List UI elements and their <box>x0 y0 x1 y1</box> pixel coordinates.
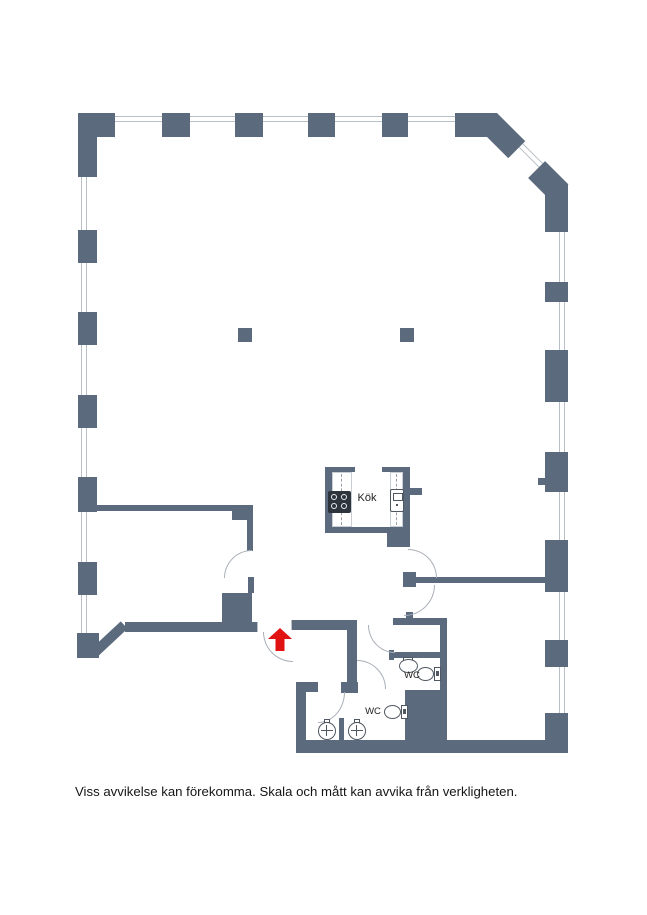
window <box>78 263 97 312</box>
window <box>78 345 97 395</box>
wall-segment <box>247 519 253 551</box>
wall-segment <box>232 511 253 520</box>
window <box>408 113 455 137</box>
window <box>78 428 97 477</box>
window <box>545 232 568 282</box>
window <box>190 113 235 137</box>
wall-pier <box>545 282 568 302</box>
wall-segment <box>538 478 548 485</box>
wall-segment <box>97 505 253 511</box>
kitchen-sink-icon <box>390 489 404 512</box>
disclaimer-text: Viss avvikelse kan förekomma. Skala och … <box>75 784 517 799</box>
wall-pier <box>78 113 115 137</box>
toilet-flush <box>436 671 439 676</box>
wall-segment <box>292 620 357 630</box>
wall-pier <box>222 593 252 632</box>
door-swing-arc <box>263 632 293 662</box>
kitchen-label: Kök <box>350 492 384 504</box>
wall-segment <box>296 682 306 747</box>
wall-pier <box>162 113 190 137</box>
wc-label: WC <box>399 670 425 681</box>
door-swing-arc <box>368 625 395 653</box>
wall-pier <box>545 640 568 667</box>
floor-plan: Kök WC WC Viss avvikelse kan förekomma. … <box>0 0 647 915</box>
window <box>545 402 568 452</box>
wall-pier <box>308 113 335 137</box>
washbasin-drain <box>351 730 363 731</box>
wall-segment <box>410 488 422 495</box>
door-swing-arc <box>408 549 437 578</box>
window <box>78 595 97 633</box>
door-swing-arc <box>404 585 435 616</box>
wall-segment <box>403 467 410 532</box>
wall-segment <box>393 652 440 658</box>
wall-pier <box>78 562 97 595</box>
wall-pier <box>382 113 408 137</box>
stove-icon <box>328 491 351 513</box>
shaft-block <box>405 690 447 740</box>
window <box>115 113 162 137</box>
wall-pier <box>78 477 97 512</box>
toilet-flush <box>403 709 406 714</box>
washbasin-drain <box>321 730 333 731</box>
wall-pier <box>78 312 97 345</box>
door-jamb <box>257 622 258 632</box>
window <box>545 667 568 713</box>
window <box>545 592 568 640</box>
wall-pier <box>545 184 568 232</box>
window <box>78 177 97 230</box>
wall-segment <box>248 577 254 593</box>
wall-pier <box>387 533 410 547</box>
wall-pier <box>545 540 568 592</box>
column <box>238 328 252 342</box>
window <box>545 492 568 540</box>
washbasin-drain <box>356 725 357 736</box>
door-swing-arc <box>224 550 252 578</box>
column <box>400 328 414 342</box>
wall-pier <box>78 137 97 177</box>
wall-pier <box>235 113 263 137</box>
wall-pier <box>78 230 97 263</box>
wall-segment <box>393 618 447 625</box>
window <box>263 113 308 137</box>
washbasin-drain <box>326 725 327 736</box>
wall-segment <box>296 740 568 753</box>
wc-label: WC <box>360 706 386 717</box>
wall-pier <box>78 395 97 428</box>
window <box>78 512 97 562</box>
wall-pier <box>545 350 568 402</box>
wall-pier <box>545 452 568 492</box>
window <box>545 302 568 350</box>
washbasin-icon <box>318 722 336 740</box>
washbasin-icon <box>348 722 366 740</box>
window <box>335 113 382 137</box>
door-swing-arc <box>357 660 386 689</box>
wall-segment <box>339 718 344 740</box>
toilet-icon <box>384 705 401 719</box>
